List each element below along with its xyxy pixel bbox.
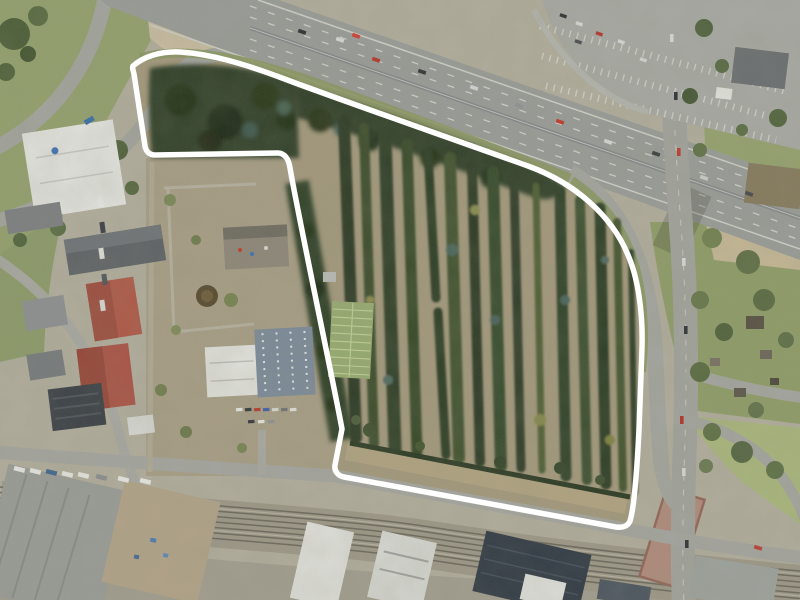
photo-texture bbox=[0, 0, 800, 600]
render-root bbox=[0, 0, 800, 600]
aerial-map-figure bbox=[0, 0, 800, 600]
grain-overlay bbox=[0, 0, 800, 600]
screenshot-root bbox=[0, 0, 800, 600]
aerial-photo bbox=[0, 0, 800, 600]
